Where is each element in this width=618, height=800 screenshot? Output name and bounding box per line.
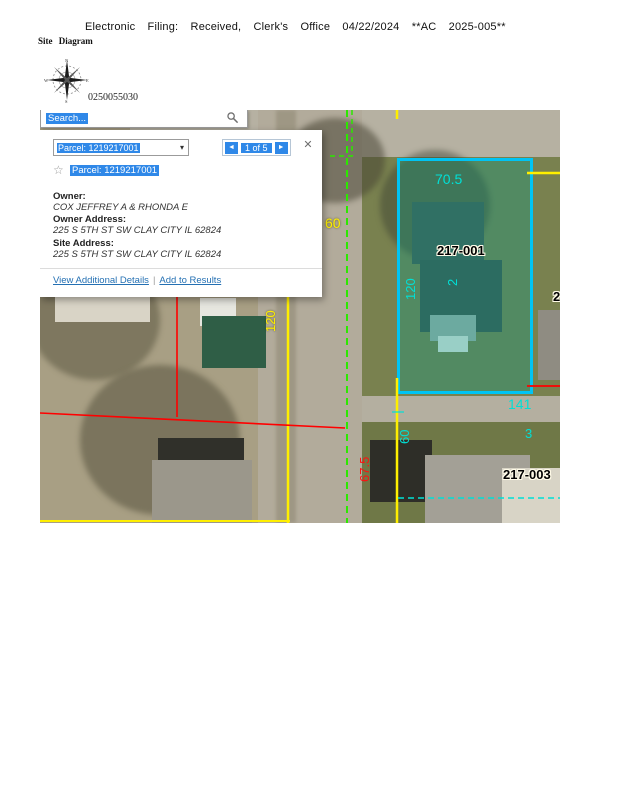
popup-links: View Additional Details|Add to Results — [53, 275, 221, 286]
site-address-label: Site Address: — [53, 238, 114, 249]
result-dropdown[interactable]: Parcel: 1219217001 ▾ — [53, 139, 189, 156]
star-icon[interactable]: ☆ — [53, 163, 64, 177]
east-parcel-partial-label: 2 — [553, 290, 560, 303]
prev-result-button[interactable]: ◄ — [225, 142, 238, 154]
selected-result-title: Parcel: 1219217001 — [70, 165, 159, 176]
centerline-branch-green — [330, 110, 353, 156]
owner-label: Owner: — [53, 191, 86, 202]
parcel-depth-label: 120 — [404, 278, 417, 300]
view-additional-details-link[interactable]: View Additional Details — [53, 275, 149, 286]
south-parcel-id-label: 217-003 — [503, 468, 551, 481]
add-to-results-link[interactable]: Add to Results — [159, 275, 221, 286]
popup-divider — [40, 268, 322, 269]
road-width-label: 60 — [325, 216, 341, 230]
link-separator: | — [153, 275, 155, 286]
svg-text:W: W — [44, 78, 49, 83]
owner-address-value: 225 S 5TH ST SW CLAY CITY IL 62824 — [53, 225, 221, 236]
map-search-box[interactable]: Search... — [40, 110, 248, 128]
next-result-button[interactable]: ► — [275, 142, 288, 154]
pager-status: 1 of 5 — [241, 143, 272, 153]
result-dropdown-value: Parcel: 1219217001 — [57, 143, 140, 153]
parcel-pin-number: 0250055030 — [88, 92, 138, 103]
site-diagram-title: Site Diagram — [38, 36, 93, 46]
parcel-result-popup: Parcel: 1219217001 ▾ ◄ 1 of 5 ► ✕ ☆ Parc… — [40, 130, 322, 297]
filed-document-page: Electronic Filing: Received, Clerk's Off… — [0, 0, 618, 800]
gis-map[interactable]: 60 120 70.5 217-001 120 2 141 3 60 67.5 … — [40, 110, 560, 523]
south-frontage-label: 141 — [508, 397, 531, 411]
south-road-width-label: 60 — [398, 430, 411, 444]
owner-value: COX JEFFREY A & RHONDA E — [53, 202, 188, 213]
efiling-stamp: Electronic Filing: Received, Clerk's Off… — [85, 21, 506, 33]
svg-text:E: E — [86, 78, 89, 83]
close-icon[interactable]: ✕ — [301, 138, 315, 152]
parcel-id-label: 217-001 — [437, 244, 485, 257]
svg-text:N: N — [65, 58, 69, 63]
west-frontage-label: 67.5 — [358, 457, 371, 482]
south-lot-number-label: 3 — [525, 427, 532, 440]
svg-text:S: S — [65, 99, 68, 103]
parcel-frontage-label: 70.5 — [435, 172, 462, 186]
site-address-value: 225 S 5TH ST SW CLAY CITY IL 62824 — [53, 249, 221, 260]
result-pager: ◄ 1 of 5 ► — [222, 139, 291, 156]
lot-line-red-horizontal — [40, 413, 345, 428]
chevron-down-icon: ▾ — [180, 143, 184, 152]
owner-address-label: Owner Address: — [53, 214, 126, 225]
compass-rose-icon: N E S W — [44, 57, 90, 108]
search-icon[interactable] — [226, 111, 239, 124]
west-lot-depth-label: 120 — [264, 310, 277, 332]
parcel-lot-number-label: 2 — [446, 279, 459, 286]
search-input[interactable]: Search... — [46, 113, 88, 124]
